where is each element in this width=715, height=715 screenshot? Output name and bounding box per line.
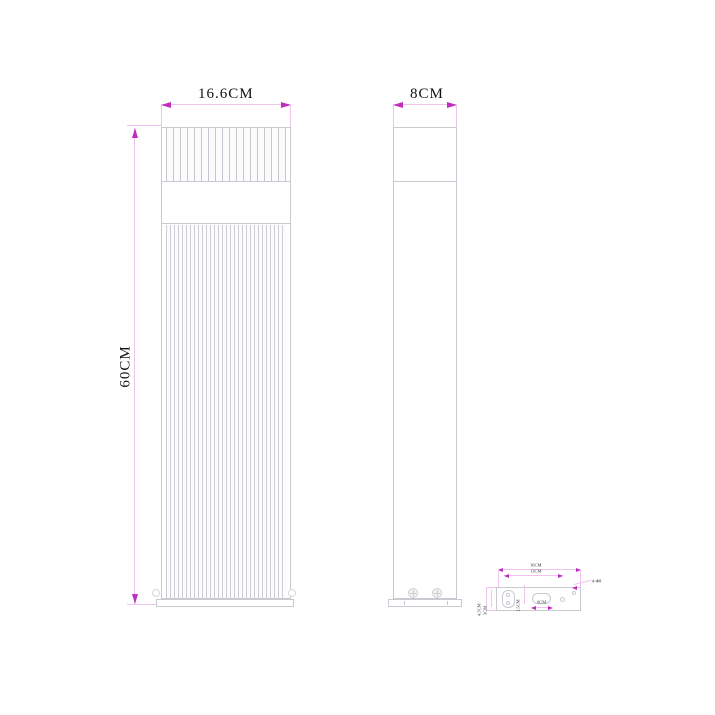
dim-arrowhead-icon (132, 128, 138, 138)
side-body-outline (393, 127, 457, 599)
detail-dim-line (524, 585, 525, 604)
detail-hole (506, 601, 510, 605)
dim-arrowhead-icon (548, 606, 553, 610)
detail-slot-width-label: 6CM (537, 600, 546, 605)
dim-arrowhead-icon (531, 606, 536, 610)
base-corner-detail (288, 589, 296, 597)
front-width-dim-line (161, 104, 291, 105)
ext-line (290, 104, 291, 127)
technical-drawing-canvas: 16.6CM 60CM 8CM (0, 0, 715, 715)
detail-dim-line (504, 575, 563, 576)
front-body-ribs (166, 225, 286, 598)
side-seam-line (394, 181, 456, 182)
front-height-label: 60CM (118, 345, 135, 387)
front-height-dim-line (134, 128, 135, 604)
detail-holes-label: 4-Φ8 (592, 579, 601, 584)
ext-line (580, 569, 581, 587)
front-head-ribs (166, 128, 286, 181)
detail-leader-line (574, 580, 592, 585)
dim-arrowhead-icon (504, 574, 509, 578)
detail-slot-height-label: 1.5CM (516, 599, 521, 612)
front-band-top-line (162, 181, 290, 182)
side-width-label: 8CM (410, 86, 444, 103)
ext-line (486, 587, 496, 588)
front-band-bottom-line (162, 223, 290, 224)
ext-line (161, 104, 162, 127)
base-tick (447, 601, 448, 605)
detail-inner-width-label: 13CM (530, 569, 542, 574)
front-base-plate (156, 599, 294, 607)
ext-line (393, 104, 394, 127)
base-tick (404, 601, 405, 605)
ext-line (456, 104, 457, 127)
detail-hole (560, 597, 565, 602)
ext-line (498, 569, 499, 587)
detail-outer-width-label: 16CM (530, 563, 542, 568)
detail-hole (572, 591, 576, 595)
dim-arrowhead-icon (393, 102, 403, 108)
ext-line (127, 125, 161, 126)
front-width-label: 16.6CM (198, 86, 254, 103)
dim-arrowhead-icon (132, 594, 138, 604)
base-corner-detail (152, 589, 160, 597)
ext-line (127, 604, 158, 605)
dim-arrowhead-icon (572, 586, 577, 590)
side-base-plate (388, 599, 462, 607)
screw-icon (432, 588, 442, 598)
detail-left-outer-label: 4.5CM (477, 603, 482, 616)
screw-icon (408, 588, 418, 598)
detail-dim-line (491, 590, 492, 607)
detail-hole (506, 593, 510, 597)
dim-arrowhead-icon (161, 102, 171, 108)
dim-arrowhead-icon (558, 574, 563, 578)
detail-left-inner-label: 3CM (483, 606, 488, 615)
